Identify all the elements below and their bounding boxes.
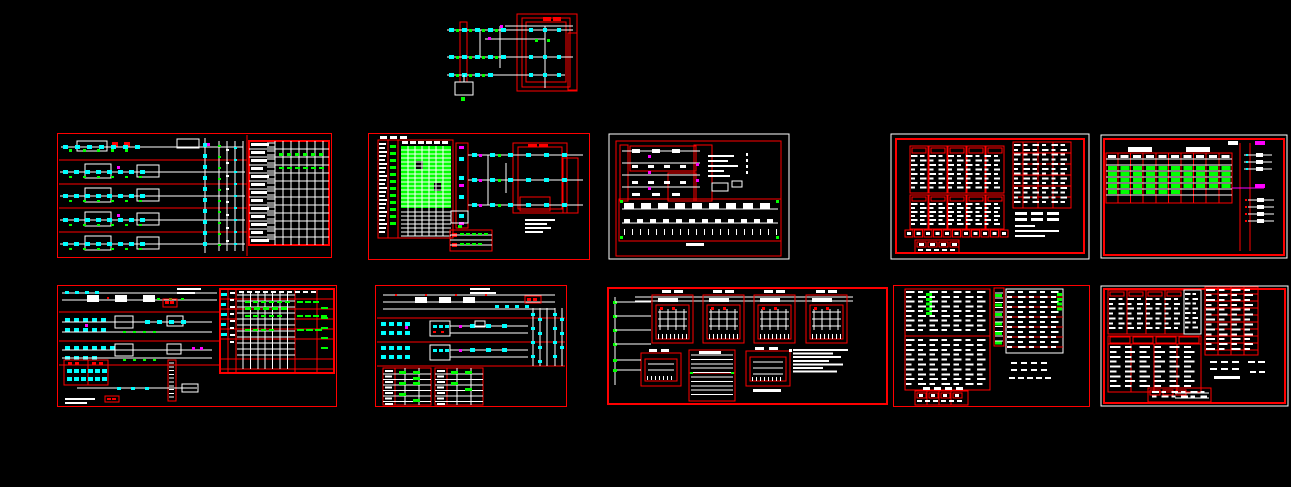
sheet-control-schematic[interactable]: [608, 133, 790, 260]
sheet-terminal-table[interactable]: [890, 133, 1090, 260]
sheet-overview-schematic[interactable]: [445, 8, 593, 105]
measurement-schematic-graphics: [375, 285, 567, 407]
protection-schematic-graphics: [57, 285, 337, 407]
sheet-feeder-schematic[interactable]: [57, 133, 332, 258]
overview-schematic-graphics: [445, 8, 593, 105]
terminal-table-graphics: [890, 133, 1090, 260]
sheet-measurement-schematic[interactable]: [375, 285, 567, 407]
control-schematic-graphics: [608, 133, 790, 260]
sheet-terminal-list-1[interactable]: [893, 285, 1090, 407]
plc-io-graphics: [368, 133, 590, 260]
sheet-io-table[interactable]: [1100, 133, 1290, 260]
sheet-wiring-diagram[interactable]: [605, 285, 890, 407]
io-table-graphics: [1100, 133, 1290, 260]
wiring-diagram-graphics: [605, 285, 890, 407]
terminal-list-2-graphics: [1100, 285, 1290, 407]
sheet-protection-schematic[interactable]: [57, 285, 337, 407]
sheet-terminal-list-2[interactable]: [1100, 285, 1290, 407]
terminal-list-1-graphics: [893, 285, 1090, 407]
sheet-plc-io[interactable]: [368, 133, 590, 260]
feeder-schematic-graphics: [57, 133, 332, 258]
cad-canvas[interactable]: [0, 0, 1291, 487]
